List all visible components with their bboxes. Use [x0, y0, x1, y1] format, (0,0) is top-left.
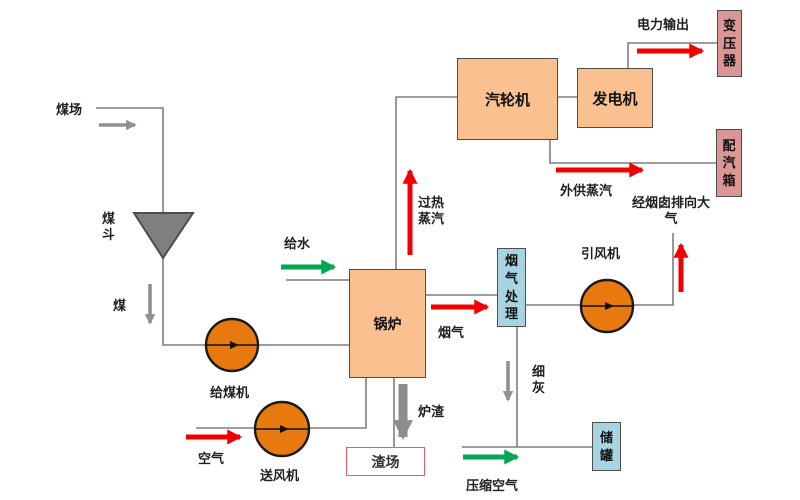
air-label: 空气 — [198, 451, 224, 467]
fine-ash-label: 细灰 — [532, 364, 549, 395]
turbine-to-distribution-line — [550, 140, 716, 163]
chimney-to-atmosphere-label: 经烟囱排向大气 — [630, 195, 712, 226]
feed-water-label: 给水 — [284, 236, 310, 252]
steam-distribution-box: 配汽箱 — [716, 129, 742, 197]
turbine-label: 汽轮机 — [485, 89, 530, 110]
superheated-steam-label: 过热蒸汽 — [418, 195, 450, 226]
turbine-box: 汽轮机 — [457, 58, 558, 140]
power-output-label: 电力输出 — [637, 17, 689, 33]
coal-hopper-label: 煤斗 — [102, 211, 119, 242]
coal-hopper-icon — [134, 213, 193, 258]
generator-label: 发电机 — [592, 88, 637, 109]
flue-gas-treatment-box: 烟气处理 — [497, 248, 526, 327]
steam-distribution-label: 配汽箱 — [722, 137, 736, 190]
storage-tank-box: 储罐 — [592, 422, 621, 471]
boiler-to-turbine-steam-line — [396, 97, 457, 269]
coal-label: 煤 — [113, 298, 126, 314]
process-flow-diagram: 汽轮机 发电机 锅炉 烟气处理 变压器 配汽箱 储罐 渣场 煤场 煤斗 煤 给煤… — [0, 0, 800, 500]
slag-label: 炉渣 — [418, 404, 444, 420]
induced-draft-fan-label: 引风机 — [581, 246, 620, 262]
connector-layer — [0, 0, 800, 500]
boiler-box: 锅炉 — [349, 269, 426, 378]
slag-yard-label: 渣场 — [372, 452, 400, 472]
transformer-label: 变压器 — [723, 17, 737, 70]
coal-feeder-label: 给煤机 — [210, 385, 249, 401]
transformer-box: 变压器 — [717, 10, 742, 77]
external-steam-label: 外供蒸汽 — [560, 183, 612, 199]
storage-tank-label: 储罐 — [600, 429, 614, 464]
generator-to-transformer-line — [628, 43, 717, 68]
boiler-label: 锅炉 — [374, 314, 402, 334]
forced-draft-fan-label: 送风机 — [260, 468, 299, 484]
generator-box: 发电机 — [577, 68, 653, 128]
compressed-air-label: 压缩空气 — [466, 478, 518, 494]
flue-gas-label: 烟气 — [438, 325, 464, 341]
hopper-to-boiler-line — [163, 257, 349, 345]
slag-yard-box: 渣场 — [346, 447, 425, 476]
coal-yard-label: 煤场 — [56, 102, 82, 118]
flue-gas-treatment-label: 烟气处理 — [505, 252, 519, 322]
